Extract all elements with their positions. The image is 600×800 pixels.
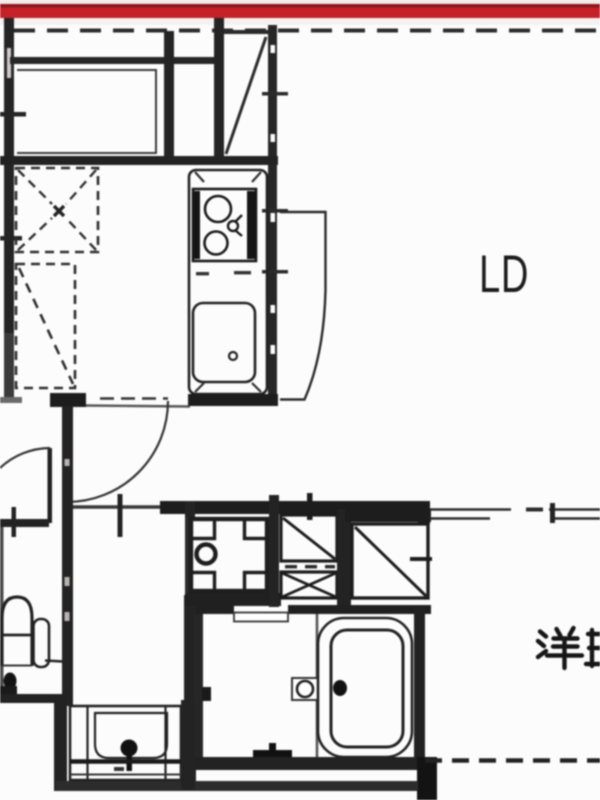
svg-text:LD: LD xyxy=(479,244,529,304)
